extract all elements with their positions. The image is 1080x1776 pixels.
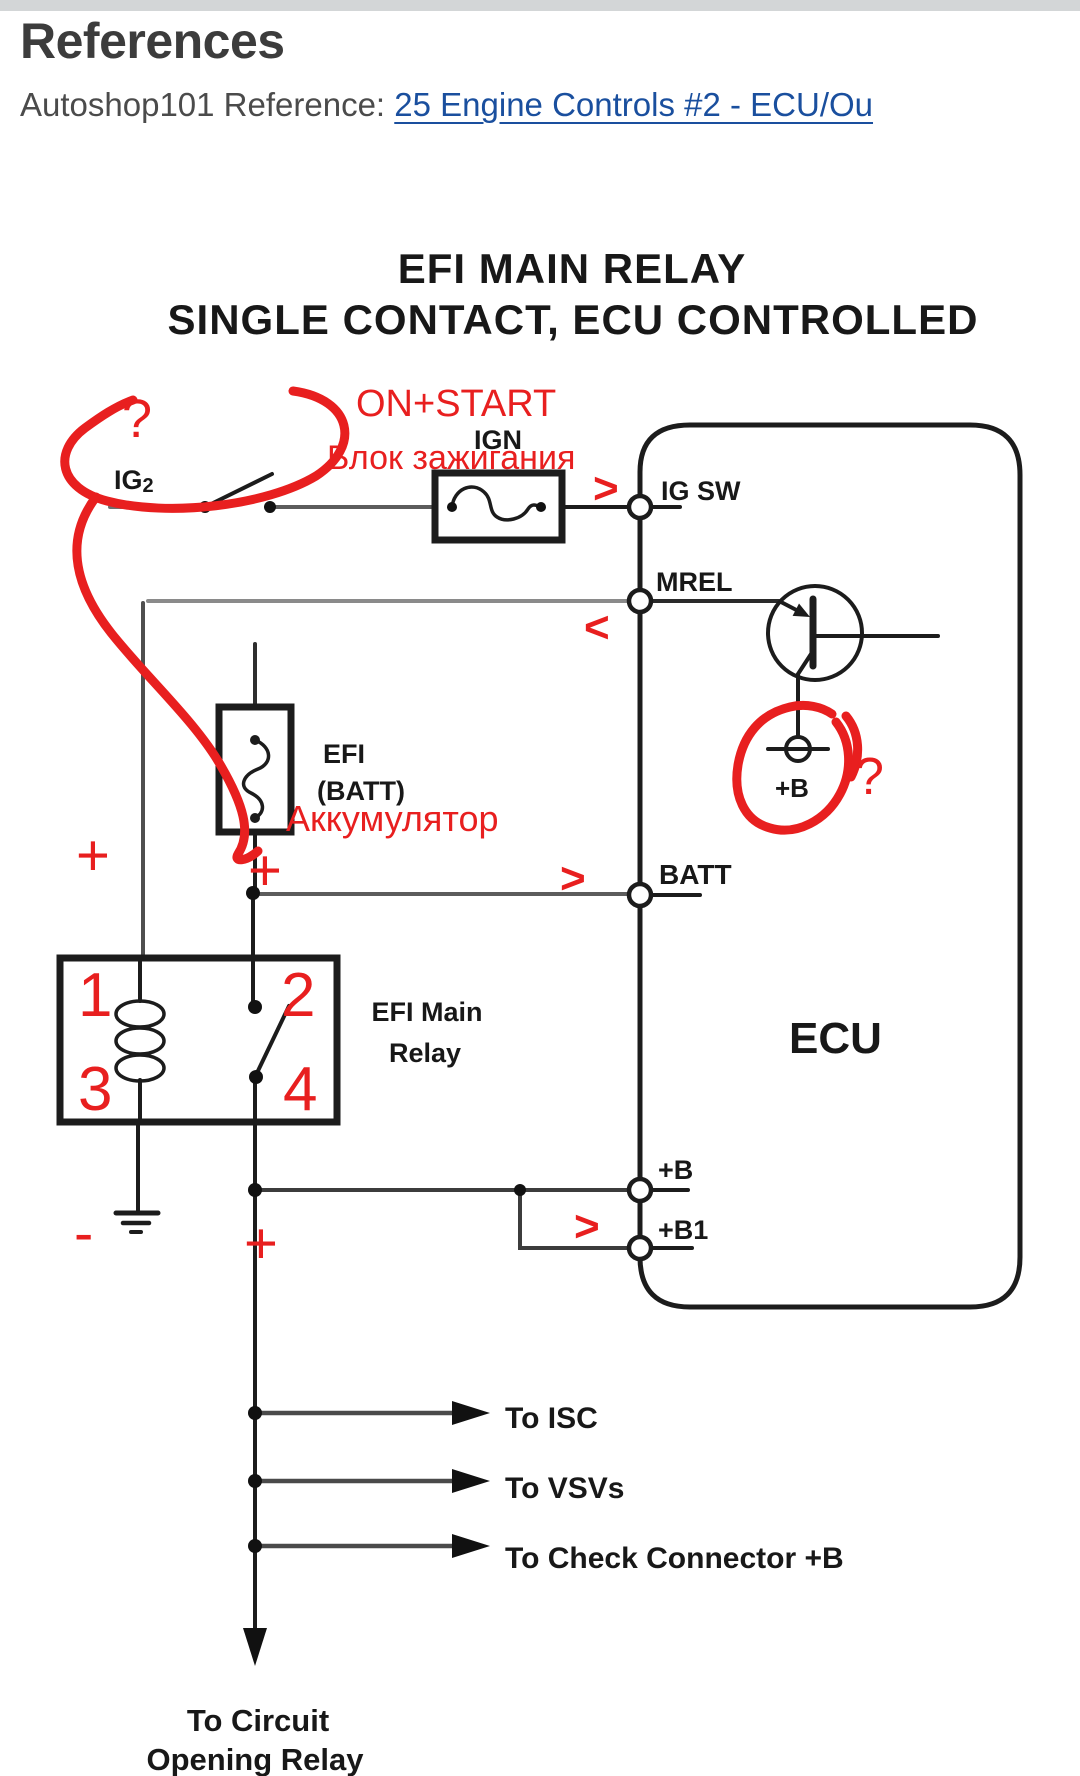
- annotation-question-ig2: ?: [122, 389, 152, 449]
- label-efi-fuse-line1: EFI: [323, 739, 365, 769]
- label-relay-line2: Relay: [389, 1038, 461, 1068]
- isc-arrowhead: [452, 1401, 490, 1425]
- label-plus-b1: +B1: [658, 1215, 708, 1245]
- plus-b1-terminal: [629, 1237, 651, 1259]
- down-arrowhead: [243, 1628, 267, 1666]
- annotation-plus-pin4: +: [244, 1211, 278, 1276]
- plus-b-circle-annotation: [737, 705, 849, 830]
- label-mrel: MREL: [656, 567, 733, 597]
- ground-symbol: [116, 1213, 158, 1232]
- annotation-plus-after-fuse: +: [248, 838, 282, 903]
- diagram-title-line1: EFI MAIN RELAY: [398, 245, 746, 292]
- vsv-arrowhead: [452, 1469, 490, 1493]
- label-to-vsvs: To VSVs: [505, 1472, 624, 1505]
- annotation-ignition-block: Блок зажигания: [327, 439, 575, 477]
- branch-arrows: [243, 1401, 490, 1666]
- annotation-arrow-batt: >: [560, 854, 586, 903]
- batt-terminal: [629, 884, 651, 906]
- label-plus-b: +B: [658, 1155, 693, 1185]
- annotation-battery-ru: Аккумулятор: [286, 798, 499, 839]
- annotation-pin2: 2: [281, 961, 315, 1030]
- annotation-pin3: 3: [78, 1055, 112, 1124]
- label-batt: BATT: [659, 859, 732, 890]
- annotation-on-start: ON+START: [356, 383, 556, 425]
- plus-b-ecu-terminal: [629, 1179, 651, 1201]
- annotation-arrow-b1: >: [574, 1202, 600, 1251]
- ig2-circle-annotation: [65, 391, 345, 508]
- label-ig-sw: IG SW: [661, 476, 741, 506]
- label-transistor-plus-b: +B: [775, 773, 809, 803]
- label-relay-line1: EFI Main: [371, 997, 482, 1027]
- annotation-pin4: 4: [283, 1055, 317, 1124]
- wire-to-plus-b: [255, 1190, 628, 1248]
- annotation-minus-ground: -: [74, 1201, 93, 1266]
- label-to-circuit-line1: To Circuit: [187, 1703, 329, 1738]
- diagram-title-line2: SINGLE CONTACT, ECU CONTROLLED: [168, 296, 979, 343]
- label-ig2: IG2: [114, 465, 154, 497]
- annotation-question-plus-b: ?: [855, 748, 884, 806]
- check-arrowhead: [452, 1534, 490, 1558]
- annotation-plus-left: +: [76, 823, 110, 888]
- mrel-terminal: [629, 590, 651, 612]
- label-to-isc: To ISC: [505, 1402, 598, 1435]
- efi-batt-fuse: [219, 707, 291, 832]
- transistor-symbol: [652, 586, 938, 737]
- annotation-arrow-mrel: <: [584, 603, 610, 652]
- annotation-pin1: 1: [78, 961, 112, 1030]
- ig2-annotation-tail: [77, 497, 258, 860]
- junction-dots: [199, 501, 546, 1553]
- annotation-arrow-igsw: >: [593, 464, 619, 513]
- efi-main-relay-diagram: EFI MAIN RELAY SINGLE CONTACT, ECU CONTR…: [0, 0, 1080, 1776]
- plus-b-terminal: [768, 737, 828, 761]
- label-to-check-connector: To Check Connector +B: [505, 1542, 844, 1575]
- ig-sw-terminal: [629, 496, 651, 518]
- label-ecu: ECU: [789, 1014, 882, 1063]
- label-to-circuit-line2: Opening Relay: [146, 1742, 364, 1776]
